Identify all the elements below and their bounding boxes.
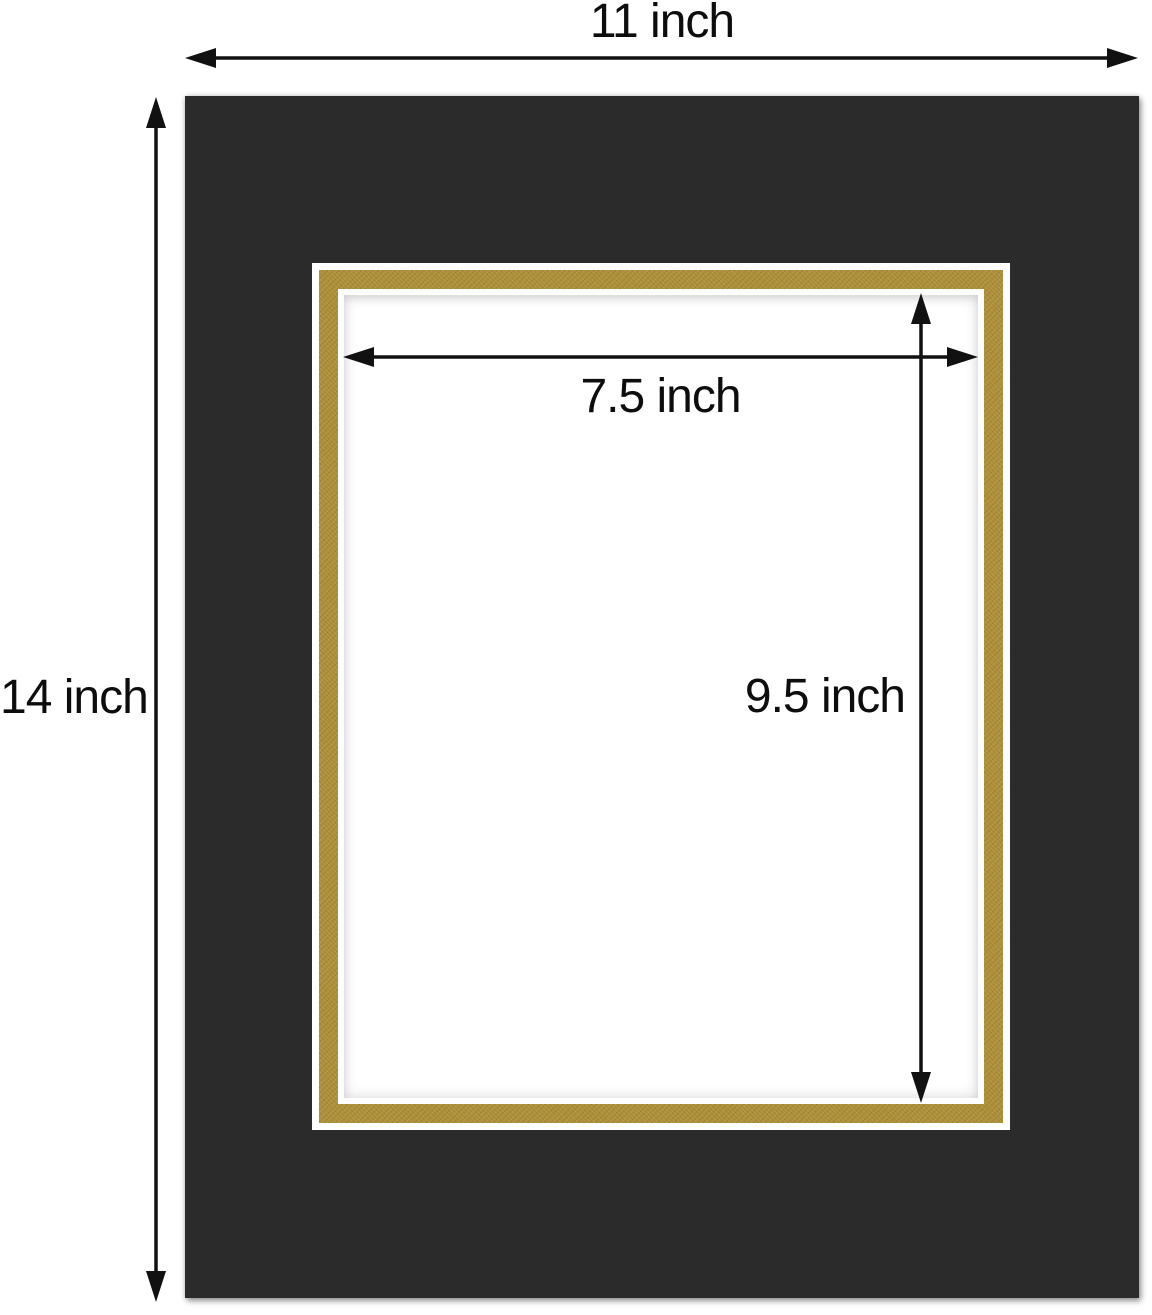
opening-width-label: 7.5 inch	[343, 371, 978, 424]
opening-height-label: 9.5 inch	[605, 671, 905, 724]
mat-dimension-diagram: 11 inch 14 inch 7.5 inch 9.5 inch	[0, 0, 1152, 1315]
outer-height-label: 14 inch	[0, 672, 146, 725]
outer-width-label: 11 inch	[185, 0, 1139, 49]
outer-height-arrow	[146, 97, 166, 1302]
outer-width-arrow	[185, 48, 1138, 68]
